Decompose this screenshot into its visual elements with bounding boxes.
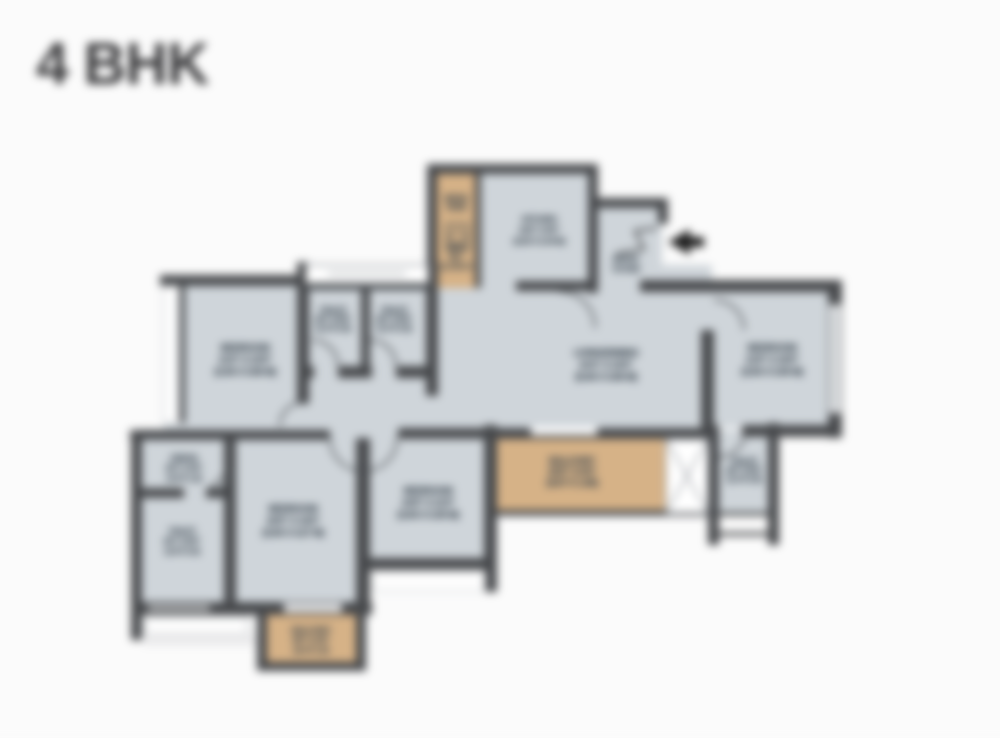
svg-text:BALCONY15'0" X 6'0"(4.57 X 1.8: BALCONY15'0" X 6'0"(4.57 X 1.83) (546, 456, 597, 489)
svg-text:BEDROOM11'0" X 12'0"(3.35 X 3.: BEDROOM11'0" X 12'0"(3.35 X 3.66 M) (214, 343, 276, 378)
svg-text:WASHYARD: WASHYARD (444, 193, 468, 212)
svg-text:ENTRYFOYER: ENTRYFOYER (612, 254, 639, 274)
svg-text:4 BHK: 4 BHK (36, 31, 210, 97)
svg-text:TOILET4'6" X 8'0"(1.4 X 2.4): TOILET4'6" X 8'0"(1.4 X 2.4) (315, 305, 352, 333)
svg-text:LIVING/DINING21'0" X 12'0"(6.4: LIVING/DINING21'0" X 12'0"(6.40 X 3.66 M… (574, 348, 639, 383)
svg-text:BEDROOM10'0" X 11'0"(3.05 X 3.: BEDROOM10'0" X 11'0"(3.05 X 3.35 M) (397, 486, 459, 521)
svg-text:TOILET4'6" X 8'0"(1.4 X 2.4): TOILET4'6" X 8'0"(1.4 X 2.4) (376, 305, 413, 333)
svg-text:DRESS6'0" X 4'0"(1.8 X 1.2): DRESS6'0" X 4'0"(1.8 X 1.2) (166, 453, 203, 483)
svg-text:TOILET4'6" X 8'0"(1.4 X 2.4): TOILET4'6" X 8'0"(1.4 X 2.4) (726, 456, 763, 484)
svg-text:TOILET6'0" X 8'0"(1.8 X 2.4): TOILET6'0" X 8'0"(1.8 X 2.4) (164, 526, 201, 556)
svg-text:BEDROOM10'0" X 14'0"(3.05 X 4.: BEDROOM10'0" X 14'0"(3.05 X 4.27 M) (262, 504, 324, 539)
svg-text:BEDROOM11'6" X 10'0"(3.50 X 3.: BEDROOM11'6" X 10'0"(3.50 X 3.05 M) (741, 343, 803, 378)
svg-text:BALCONY8'0" X 4'0"(2.4 X 1.2): BALCONY8'0" X 4'0"(2.4 X 1.2) (292, 625, 332, 655)
